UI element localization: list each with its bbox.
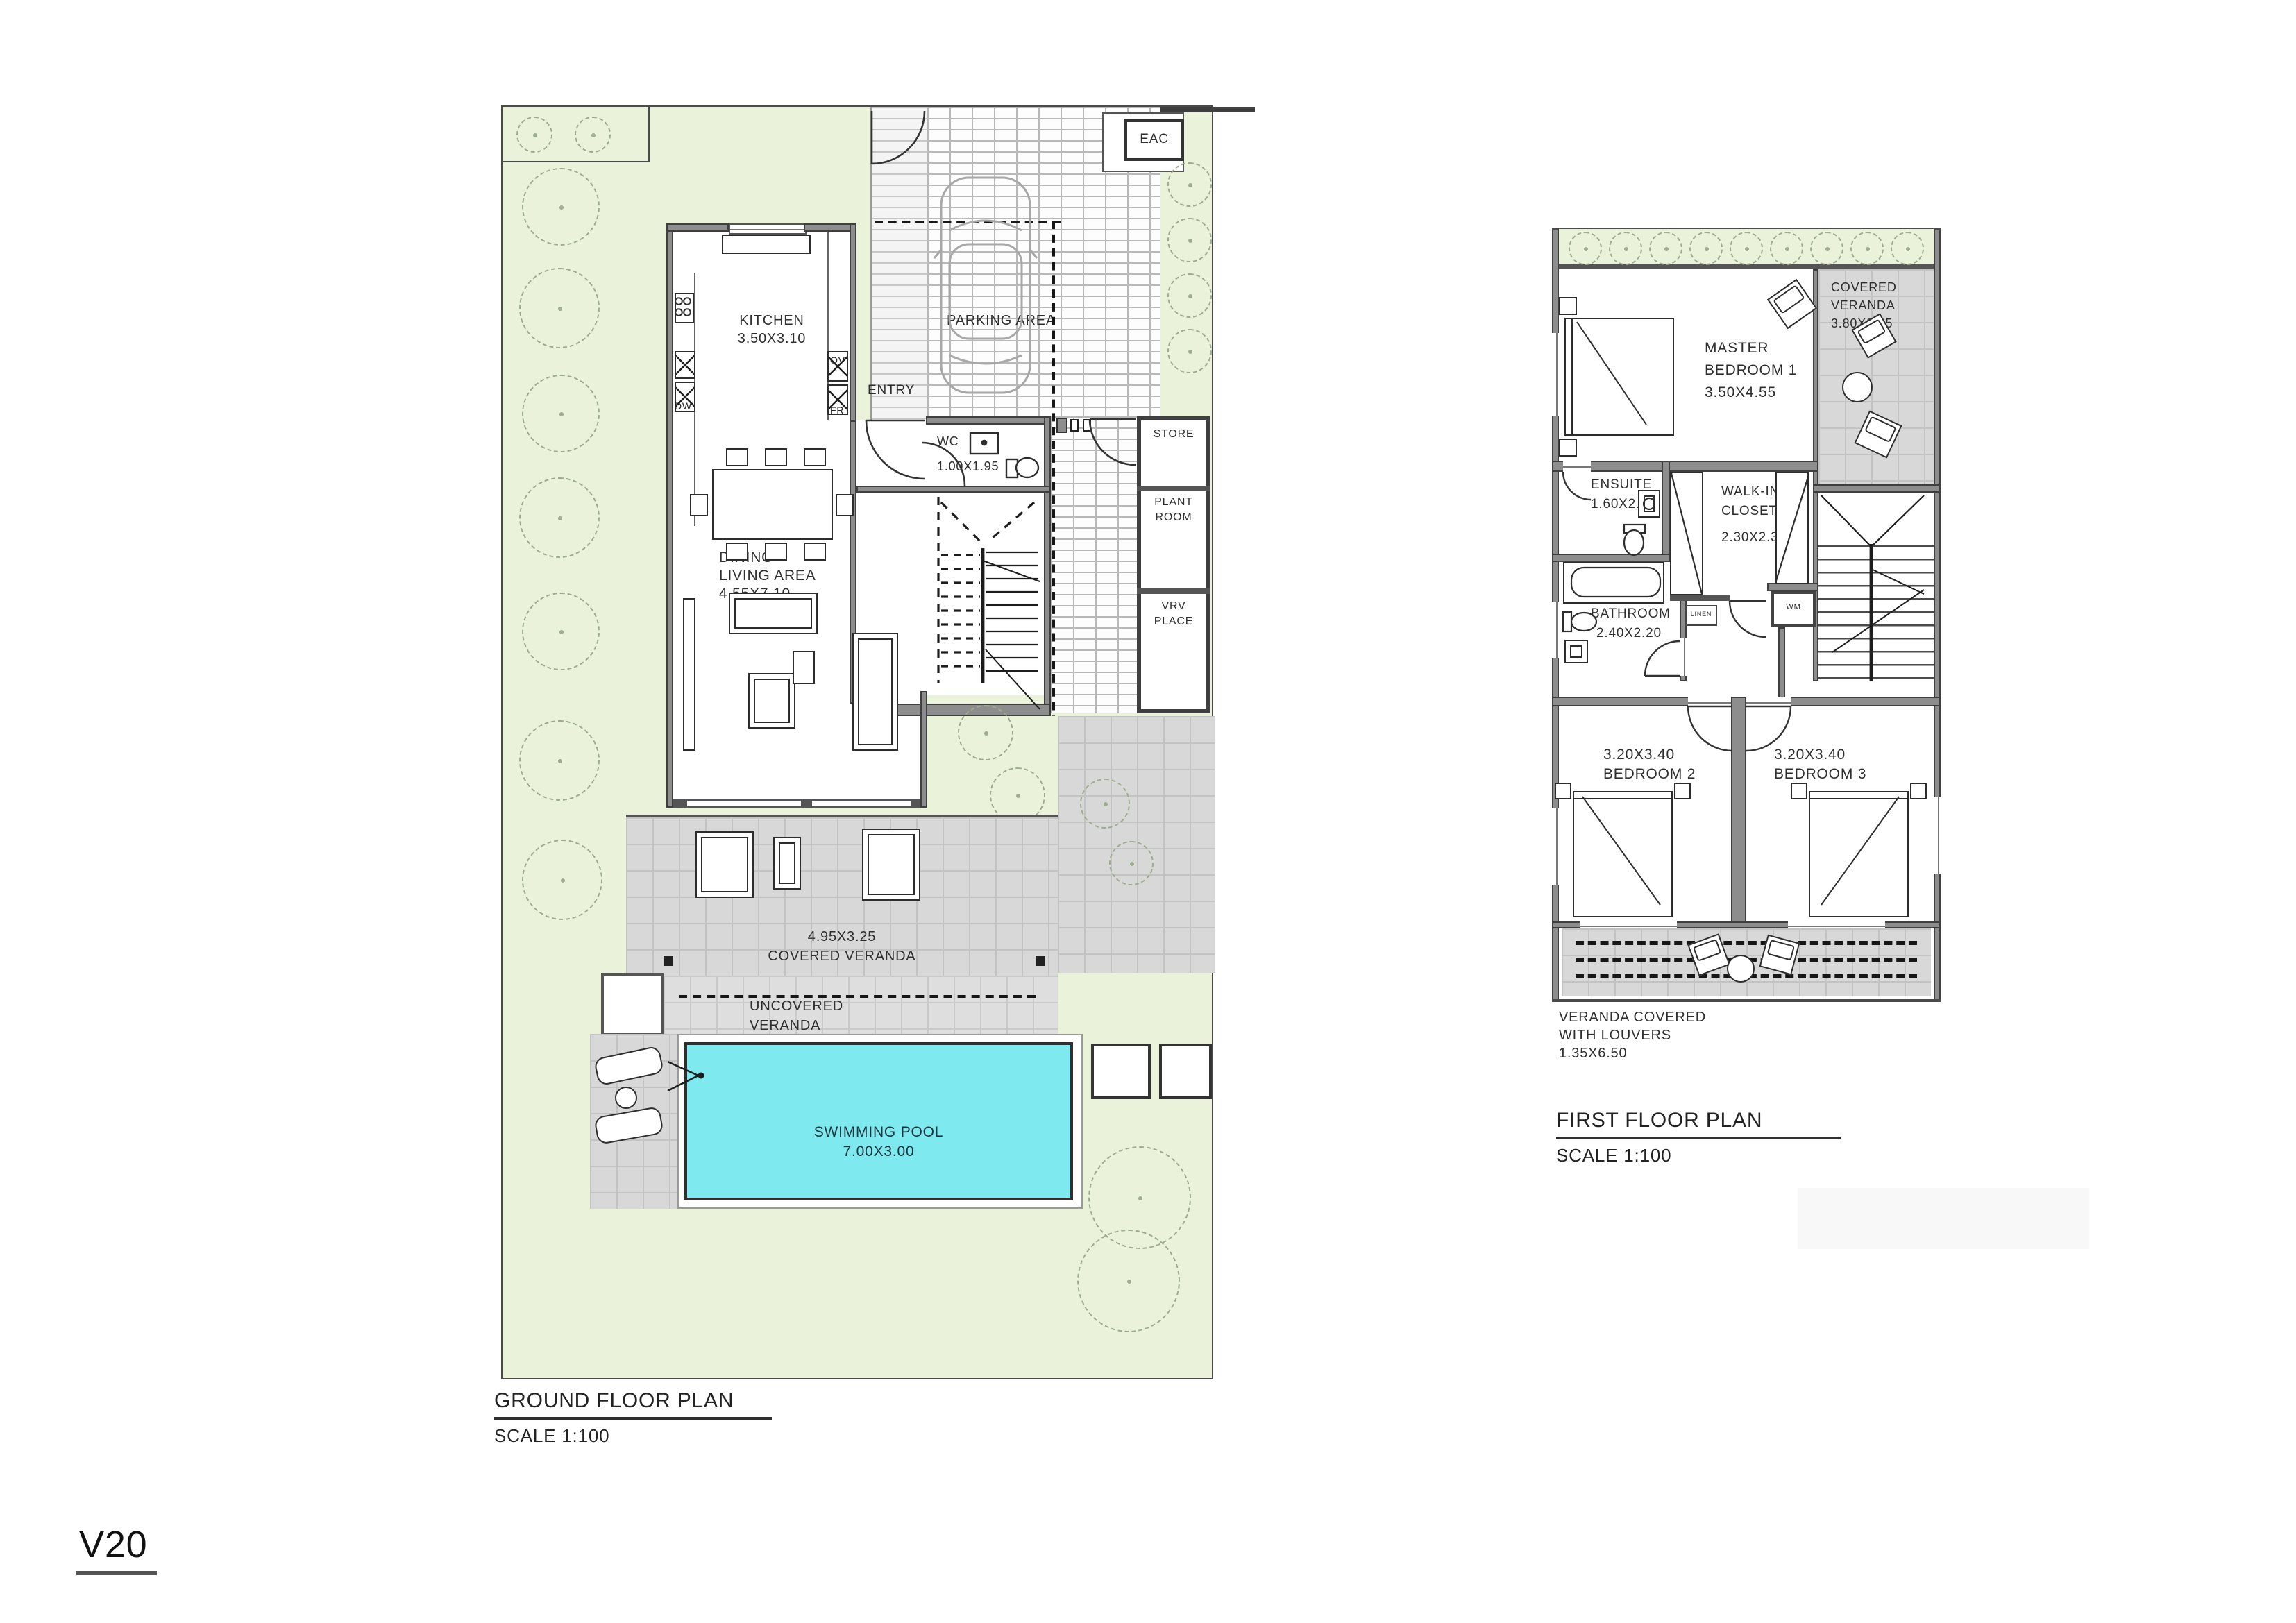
plant-l1: PLANT — [1137, 497, 1210, 508]
tree-icon — [522, 840, 602, 920]
ff-louver-caption-1: VERANDA COVERED — [1559, 1012, 1706, 1026]
bed-headboard — [1573, 791, 1673, 799]
oven-box — [827, 351, 848, 382]
wall — [926, 416, 1051, 425]
store-column — [1137, 416, 1210, 713]
bed3-dims: 3.20X3.40 — [1774, 748, 1846, 763]
dining-chair — [765, 448, 787, 466]
walkin-l1: WALK-IN — [1721, 486, 1780, 499]
cooktop — [675, 293, 694, 323]
kitchen-window — [729, 223, 807, 235]
door-gap — [1746, 697, 1791, 706]
bush-icon — [1109, 841, 1154, 885]
ff-scale: SCALE 1:100 — [1556, 1146, 1671, 1164]
wall — [801, 799, 812, 808]
nightstand — [1559, 439, 1577, 457]
tree-icon — [522, 593, 600, 670]
linen-label: LINEN — [1685, 612, 1717, 618]
veranda-chair — [695, 831, 754, 898]
nightstand — [1555, 783, 1571, 799]
bed3-name: BEDROOM 3 — [1774, 767, 1866, 782]
veranda-table — [773, 837, 801, 890]
dining-chair — [726, 543, 748, 561]
covered-veranda-name: COVERED VERANDA — [626, 951, 1058, 965]
wall — [1670, 595, 1730, 601]
wall — [1662, 461, 1670, 559]
kitchen-name: KITCHEN — [709, 315, 834, 329]
veranda-chair — [862, 829, 920, 901]
veranda-chair — [1687, 933, 1730, 976]
meter-box — [1058, 419, 1066, 432]
wall — [666, 223, 729, 232]
planter-strip — [1559, 229, 1934, 269]
parking-label: PARKING AREA — [947, 315, 1056, 329]
uncovered-dashed-line — [679, 995, 1036, 998]
meter-box — [1070, 419, 1079, 432]
wall — [1552, 554, 1670, 562]
wall — [1137, 486, 1210, 491]
wall — [1934, 228, 1941, 1002]
ov-label: OV — [830, 357, 845, 366]
ff-louver-caption-3: 1.35X6.50 — [1559, 1048, 1627, 1062]
wardrobe — [1670, 472, 1703, 595]
wc-dims: 1.00X1.95 — [937, 461, 999, 473]
tree-icon — [519, 720, 600, 801]
bush-icon — [1167, 329, 1212, 373]
wall — [1137, 588, 1210, 594]
pool-equipment-box — [1091, 1044, 1151, 1099]
wm-label: WM — [1771, 605, 1816, 613]
dw-label: DW — [675, 402, 692, 412]
walkin-l2: CLOSET — [1721, 505, 1778, 518]
vrv-l2: PLACE — [1137, 616, 1210, 627]
pool-l1: SWIMMING POOL — [684, 1125, 1073, 1140]
wall — [1044, 416, 1051, 713]
wall — [804, 223, 856, 232]
wall — [920, 691, 927, 808]
bed2-dims: 3.20X3.40 — [1603, 748, 1675, 763]
fr-label: FR — [830, 407, 844, 416]
floor-plan-sheet: EAC DW OV — [0, 0, 2296, 1623]
wall — [1552, 461, 1818, 472]
plant-l2: ROOM — [1137, 512, 1210, 523]
vrv-l1: VRV — [1137, 601, 1210, 612]
bush-icon — [1167, 273, 1212, 318]
wall — [911, 799, 920, 808]
dining-chair — [836, 494, 854, 516]
wall — [1552, 999, 1941, 1002]
pool-l2: 7.00X3.00 — [684, 1145, 1073, 1159]
pool-pump-box — [1159, 1044, 1212, 1099]
master-l2: BEDROOM 1 — [1705, 364, 1797, 378]
bed-master — [1564, 318, 1674, 436]
eac-label: EAC — [1124, 133, 1184, 146]
bed-headboard — [1564, 318, 1573, 436]
bath-sink — [1564, 640, 1588, 663]
door-gap — [1688, 697, 1732, 706]
nightstand — [1910, 783, 1927, 799]
wall — [1731, 697, 1746, 931]
bedroom-window — [1580, 921, 1677, 928]
bath-l1: BATHROOM — [1591, 608, 1671, 621]
uncovered-l2: VERANDA — [750, 1020, 820, 1034]
faint-block — [1798, 1188, 2089, 1249]
sliding-door — [673, 799, 920, 808]
sheet-code: V20 — [79, 1527, 148, 1564]
wall — [666, 223, 673, 808]
wardrobe — [1775, 472, 1809, 584]
kitchen-dims: 3.50X3.10 — [709, 333, 834, 347]
dining-chair — [804, 543, 826, 561]
window — [1934, 797, 1941, 874]
dining-l2: LIVING AREA — [719, 569, 816, 584]
bush-icon — [1569, 232, 1602, 265]
nightstand — [1674, 783, 1691, 799]
tree-icon — [522, 375, 600, 452]
bush-icon — [1850, 232, 1884, 265]
dining-chair — [726, 448, 748, 466]
nightstand — [1559, 297, 1577, 315]
bush-icon — [1167, 218, 1212, 262]
sheet-code-underline — [76, 1571, 157, 1574]
window — [1552, 808, 1559, 885]
ensuite-sink — [1638, 490, 1660, 518]
side-path — [1051, 416, 1137, 713]
ff-title: FIRST FLOOR PLAN — [1556, 1110, 1762, 1131]
nightstand — [1791, 783, 1807, 799]
upper-floor-outline — [875, 221, 1061, 223]
first-floor-plan: COVERED VERANDA 3.80X2.05 MASTER BEDROOM… — [1552, 228, 1941, 1002]
ff-stairs — [1818, 545, 1934, 681]
gf-scale: SCALE 1:100 — [494, 1427, 609, 1445]
sofa-2 — [852, 633, 898, 751]
kitchen-island — [722, 235, 811, 254]
ff-title-underline — [1556, 1137, 1841, 1139]
door-gap — [1680, 638, 1687, 676]
swimming-pool — [684, 1042, 1073, 1200]
louver-veranda — [1562, 928, 1931, 996]
louver-line — [1576, 941, 1917, 945]
ff-veranda-l1: COVERED — [1831, 282, 1897, 294]
bedroom-chair — [1767, 279, 1817, 329]
wall — [856, 486, 1051, 493]
store-label: STORE — [1137, 429, 1210, 440]
door-gap — [1563, 461, 1591, 472]
uncovered-l1: UNCOVERED — [750, 1001, 843, 1014]
bed-headboard — [1809, 791, 1909, 799]
bush-icon — [575, 117, 611, 153]
veranda-table — [1842, 372, 1873, 402]
tree-icon — [522, 168, 600, 246]
appliance-box — [675, 351, 695, 379]
veranda-table — [1727, 955, 1755, 983]
dining-chair — [690, 494, 708, 516]
bush-icon — [1167, 162, 1212, 207]
master-l3: 3.50X4.55 — [1705, 386, 1776, 400]
meter-box — [1083, 419, 1091, 432]
entry-walkway — [870, 107, 927, 420]
bush-icon — [1891, 232, 1924, 265]
bush-icon — [1730, 232, 1763, 265]
bush-icon — [1609, 232, 1642, 265]
bush-icon — [958, 705, 1013, 760]
bush-icon — [1649, 232, 1682, 265]
entry-label: ENTRY — [868, 384, 915, 398]
wc-name: WC — [937, 436, 959, 448]
bathtub — [1563, 562, 1664, 604]
bush-icon — [1080, 779, 1130, 829]
armchair — [748, 673, 795, 729]
window — [1552, 333, 1559, 416]
gf-title-underline — [494, 1417, 772, 1420]
ff-louver-caption-2: WITH LOUVERS — [1559, 1030, 1671, 1044]
dining-table — [712, 469, 833, 540]
bush-icon — [1689, 232, 1723, 265]
bath-l2: 2.40X2.20 — [1596, 627, 1662, 640]
dining-chair — [765, 543, 787, 561]
sofa — [729, 593, 818, 634]
tree-icon — [519, 268, 600, 348]
bush-icon — [1810, 232, 1843, 265]
dining-chair — [804, 448, 826, 466]
bush-strip — [503, 107, 650, 162]
bed-3 — [1809, 791, 1909, 917]
wall — [1813, 484, 1941, 493]
master-l1: MASTER — [1705, 341, 1769, 356]
bush-icon — [516, 117, 552, 153]
bed-2 — [1573, 791, 1673, 917]
bed2-name: BEDROOM 2 — [1603, 767, 1696, 782]
tree-icon — [519, 477, 600, 558]
covered-veranda-dims: 4.95X3.25 — [626, 931, 1058, 945]
patio-table — [615, 1087, 637, 1109]
side-table — [793, 651, 815, 684]
window — [1552, 602, 1559, 658]
uncovered-veranda — [664, 976, 1058, 1037]
tv-unit — [683, 598, 695, 751]
tree-icon — [1077, 1230, 1180, 1332]
bush-icon — [1770, 232, 1803, 265]
ground-floor-plan: EAC DW OV — [501, 105, 1213, 1379]
planter-box — [601, 973, 664, 1035]
gf-title: GROUND FLOOR PLAN — [494, 1391, 734, 1411]
wall — [1778, 627, 1785, 698]
ff-veranda-l2: VERANDA — [1831, 300, 1896, 312]
bedroom-window — [1788, 921, 1885, 928]
wall — [673, 799, 687, 808]
